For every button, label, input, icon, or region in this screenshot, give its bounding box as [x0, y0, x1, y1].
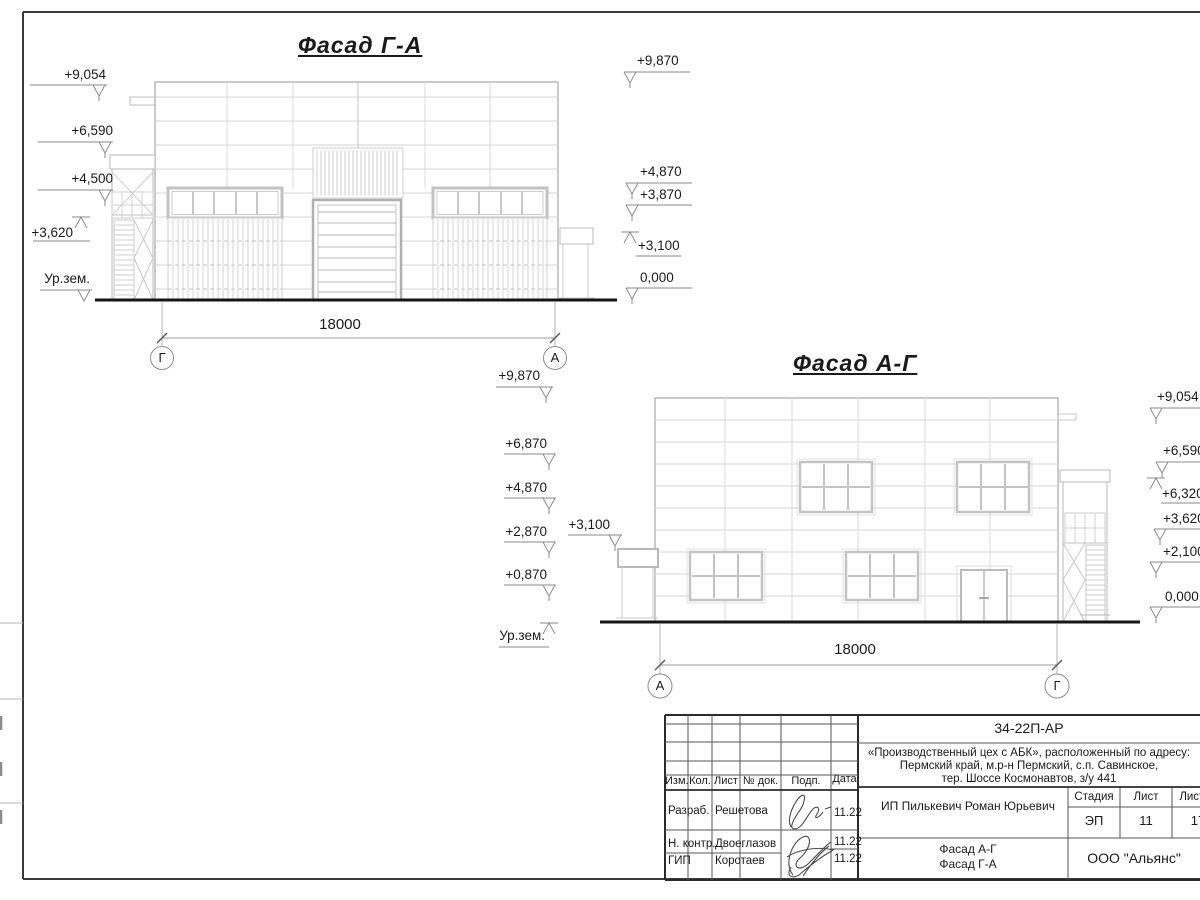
elevation-label: +9,054 [30, 68, 106, 82]
elevation-label: +6,590 [37, 124, 113, 138]
titleblock-name: Двоеглазов [715, 838, 776, 850]
facade2-annex [616, 549, 658, 618]
facade2-dimension [648, 624, 1069, 698]
titleblock-sheets-label: Листов [1172, 791, 1200, 803]
facade2-stair-tower [1060, 470, 1110, 622]
facade1-gate [313, 200, 401, 300]
titleblock-role: Н. контр. [668, 838, 715, 850]
elevation-label: +0,870 [471, 568, 547, 582]
elevation-label: Ур.зем. [14, 272, 90, 286]
elevation-label: 0,000 [640, 271, 674, 285]
titleblock-col-data: Дата [831, 774, 858, 786]
elevation-label: +6,320 [1162, 487, 1200, 501]
titleblock-name: Решетова [715, 805, 768, 817]
facade2-title: Фасад А-Г [793, 351, 917, 375]
drawing-sheet: Фасад Г-А Фасад А-Г +9,054 +6,590 +4,500… [0, 0, 1200, 900]
facade2-upper-window-right [954, 459, 1032, 515]
titleblock-col-list: Лист [712, 776, 740, 788]
facade2-axis-right: Г [1045, 679, 1069, 693]
titleblock-project-line2: Пермский край, м.р-н Пермский, с.п. Сави… [860, 760, 1198, 772]
signature-scribbles [787, 795, 833, 877]
elevation-label: +6,870 [471, 437, 547, 451]
titleblock-project-line3: тер. Шоссе Космонавтов, з/у 441 [860, 773, 1198, 785]
facade1-title: Фасад Г-А [298, 33, 422, 57]
left-margin-boxes [0, 623, 23, 824]
titleblock-role: Разраб. [668, 805, 709, 817]
facade2-dimension-label: 18000 [805, 642, 905, 658]
titleblock-name: Коротаев [715, 855, 765, 867]
facade1-dimension [151, 302, 567, 370]
titleblock-company: ООО "Альянс" [1068, 851, 1200, 866]
facade1-axis-right: А [543, 351, 567, 365]
elevation-label: +2,100 [1163, 545, 1200, 559]
facade1-window-band-right [433, 188, 547, 218]
titleblock-date: 11.22 [834, 836, 862, 848]
facade1-annex [558, 228, 595, 300]
elevation-label: +3,100 [534, 518, 610, 532]
elevation-label: +9,054 [1157, 390, 1199, 404]
titleblock-sheet-title-line2: Фасад Г-А [868, 858, 1068, 871]
elevation-label: +9,870 [464, 369, 540, 383]
elevation-label: +3,100 [638, 239, 680, 253]
titleblock-sheets-value: 17 [1172, 814, 1200, 828]
titleblock-client: ИП Пилькевич Роман Юрьевич [868, 800, 1068, 813]
elevation-label: 0,000 [1165, 590, 1199, 604]
elevation-label: Ур.зем. [469, 629, 545, 643]
titleblock-doc-number: 34-22П-АР [858, 721, 1200, 736]
titleblock-col-kol: Кол. [688, 776, 712, 788]
elevation-label: +6,590 [1163, 444, 1200, 458]
signature-razrab [790, 795, 831, 829]
elevation-label: +4,870 [640, 165, 682, 179]
elevation-label: +9,870 [637, 54, 679, 68]
elevation-label: +3,870 [640, 188, 682, 202]
facade1-axis-left: Г [150, 351, 174, 365]
titleblock-stage-value: ЭП [1068, 814, 1120, 828]
facade2-lower-window-right [843, 549, 921, 603]
signature-gip [787, 836, 833, 876]
facade1-striped-cladding-right [433, 218, 547, 300]
elevation-label: +3,620 [1163, 512, 1200, 526]
facade1-window-band-left [168, 188, 282, 218]
titleblock-col-podp: Подп. [781, 776, 831, 788]
elevation-label: +4,870 [471, 481, 547, 495]
titleblock-col-izm: Изм. [665, 776, 688, 788]
facade2-door [957, 566, 1011, 622]
titleblock-sheet-title-line1: Фасад А-Г [868, 843, 1068, 856]
facade2-upper-window-left [797, 459, 875, 515]
titleblock-project-line1: «Производственный цех с АБК», расположен… [860, 747, 1198, 759]
titleblock-role: ГИП [668, 855, 691, 867]
titleblock-date: 11.22 [834, 853, 862, 865]
titleblock-col-doc: № док. [740, 776, 781, 788]
facade2-lower-window-left [687, 549, 765, 603]
facade1-stair-tower [107, 155, 158, 300]
facade1-striped-cladding-left [168, 218, 282, 300]
facade1-dimension-label: 18000 [290, 317, 390, 333]
elevation-label: +3,620 [0, 226, 73, 240]
titleblock-sheet-value: 11 [1120, 814, 1172, 828]
titleblock-stage-label: Стадия [1068, 791, 1120, 803]
titleblock-date: 11.22 [834, 807, 862, 819]
titleblock-sheet-label: Лист [1120, 791, 1172, 803]
facade2-axis-left: А [648, 679, 672, 693]
elevation-label: +4,500 [37, 172, 113, 186]
